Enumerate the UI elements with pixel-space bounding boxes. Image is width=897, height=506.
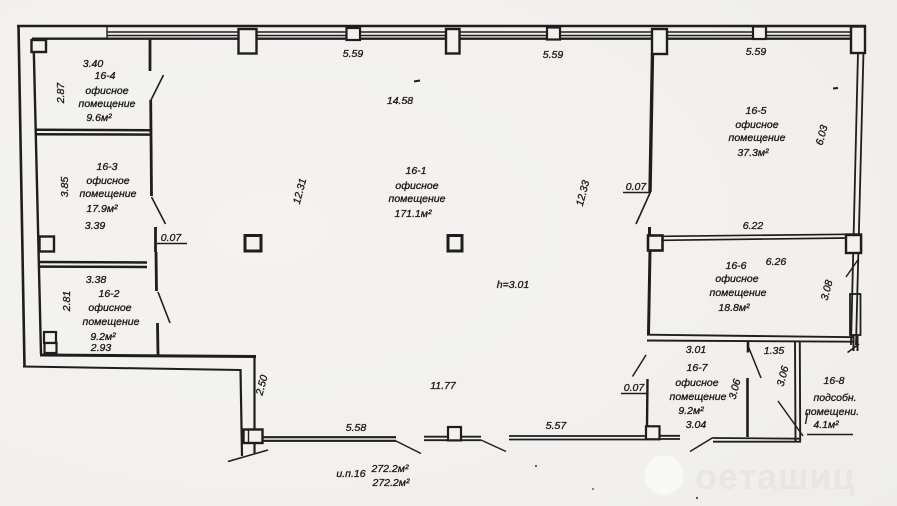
svg-text:помещение: помещение — [670, 391, 727, 403]
svg-text:офисное: офисное — [85, 85, 128, 97]
svg-text:14.58: 14.58 — [387, 95, 413, 107]
svg-text:помещение: помещение — [729, 132, 786, 144]
svg-text:272.2м²: 272.2м² — [372, 477, 410, 489]
svg-text:16-5: 16-5 — [745, 105, 766, 117]
svg-text:16-2: 16-2 — [98, 288, 119, 300]
svg-text:3.40: 3.40 — [83, 58, 104, 70]
svg-text:3.85: 3.85 — [59, 177, 71, 198]
svg-text:5.59: 5.59 — [543, 49, 564, 61]
svg-text:помещение: помещение — [79, 98, 136, 110]
svg-text:офисное: офисное — [735, 119, 778, 131]
svg-text:37.3м²: 37.3м² — [737, 147, 769, 159]
svg-text:17.9м²: 17.9м² — [86, 203, 118, 215]
svg-text:18.8м²: 18.8м² — [718, 302, 750, 314]
svg-text:офисное: офисное — [395, 180, 438, 192]
svg-text:офисное: офисное — [675, 377, 718, 389]
svg-text:5.59: 5.59 — [343, 48, 364, 60]
svg-text:16-7: 16-7 — [686, 362, 708, 374]
svg-text:офисное: офисное — [86, 175, 129, 187]
svg-text:0.07: 0.07 — [624, 382, 646, 394]
svg-text:4.1м²: 4.1м² — [813, 419, 839, 431]
svg-text:16-1: 16-1 — [405, 165, 426, 177]
svg-text:5.57: 5.57 — [546, 420, 568, 432]
svg-text:5.58: 5.58 — [346, 422, 367, 434]
svg-text:офисное: офисное — [88, 302, 131, 314]
svg-text:оеташиц: оеташиц — [695, 456, 855, 497]
svg-text:2.81: 2.81 — [61, 291, 73, 312]
svg-text:3.01: 3.01 — [686, 344, 706, 356]
svg-text:3.04: 3.04 — [686, 419, 707, 431]
svg-text:помещение: помещение — [80, 188, 137, 200]
svg-text:9.2м²: 9.2м² — [678, 405, 704, 417]
svg-text:1.35: 1.35 — [764, 345, 785, 357]
svg-text:16-4: 16-4 — [94, 70, 115, 82]
svg-text:и.п.16: и.п.16 — [336, 468, 365, 480]
svg-text:2.93: 2.93 — [90, 342, 112, 354]
svg-text:подсобн.: подсобн. — [813, 392, 856, 404]
svg-text:0.07: 0.07 — [626, 181, 648, 193]
svg-text:5.59: 5.59 — [746, 46, 767, 58]
svg-text:помещение: помещение — [83, 316, 140, 328]
svg-text:6.22: 6.22 — [743, 220, 764, 232]
svg-text:171.1м²: 171.1м² — [395, 208, 432, 220]
svg-text:помещение: помещение — [710, 287, 767, 299]
svg-text:помещени.: помещени. — [805, 406, 859, 418]
svg-text:помещение: помещение — [389, 193, 446, 205]
svg-text:16-3: 16-3 — [96, 161, 117, 173]
svg-text:0.07: 0.07 — [161, 232, 183, 244]
svg-text:3.39: 3.39 — [85, 220, 106, 232]
svg-text:6.26: 6.26 — [766, 256, 787, 268]
svg-text:3.38: 3.38 — [86, 274, 107, 286]
svg-text:272.2м²: 272.2м² — [371, 463, 409, 475]
svg-text:11.77: 11.77 — [430, 380, 457, 392]
svg-text:2.87: 2.87 — [55, 82, 67, 105]
svg-text:офисное: офисное — [715, 273, 758, 285]
svg-text:h=3.01: h=3.01 — [497, 279, 529, 291]
svg-text:16-8: 16-8 — [823, 375, 844, 387]
svg-text:16-6: 16-6 — [725, 260, 746, 272]
svg-text:9.6м²: 9.6м² — [86, 112, 112, 124]
